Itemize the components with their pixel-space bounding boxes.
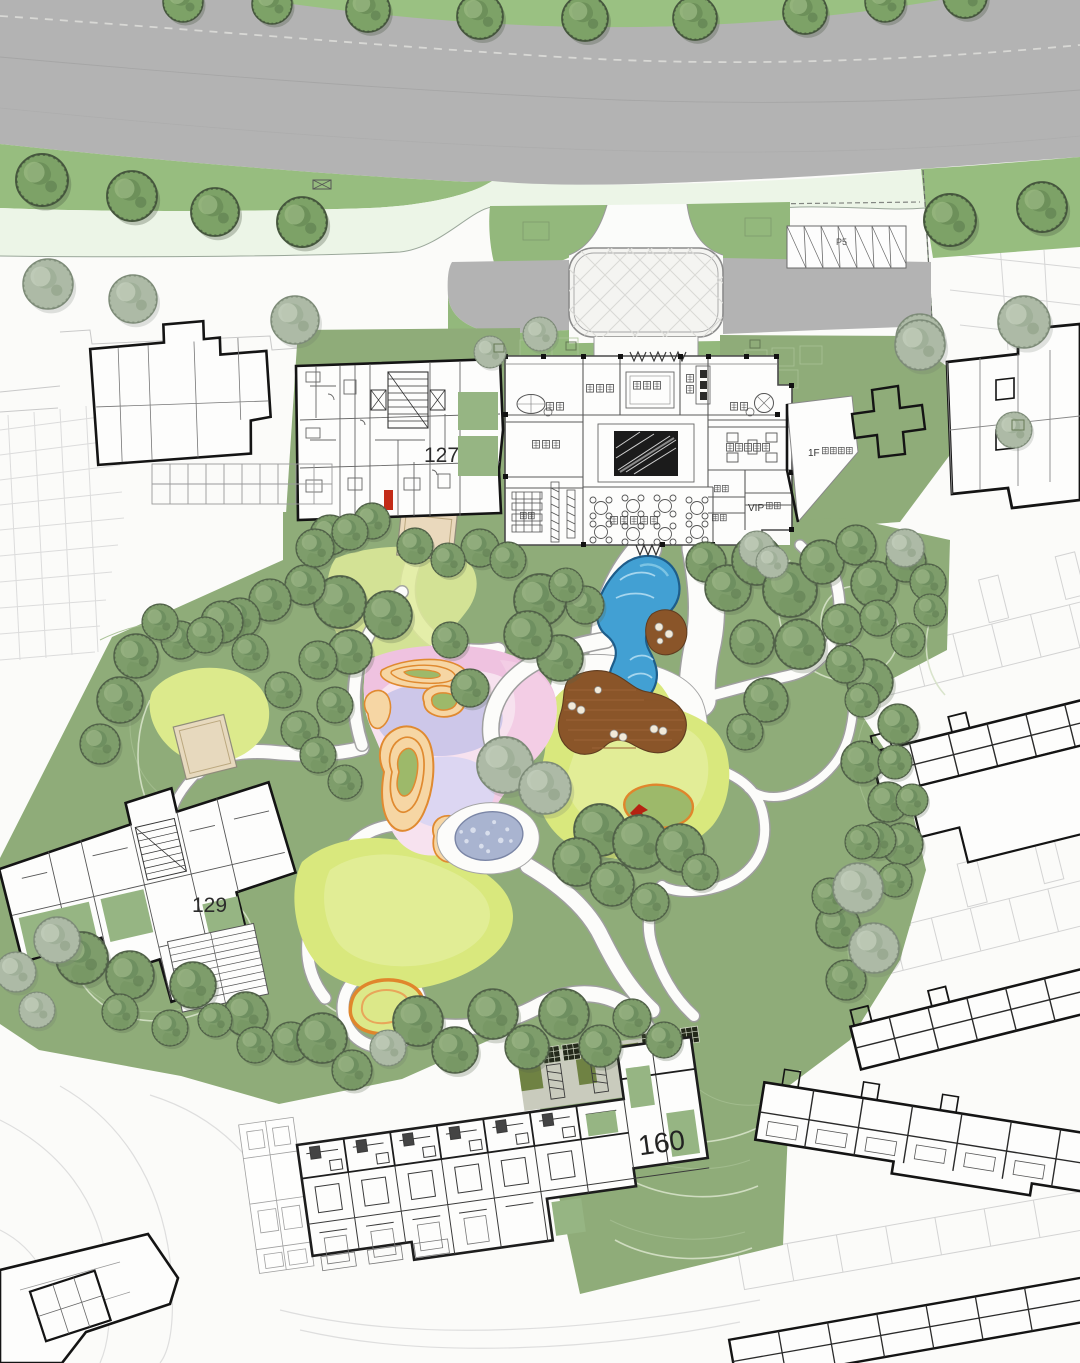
svg-text:VIP: VIP xyxy=(748,503,764,514)
svg-text:160: 160 xyxy=(636,1124,687,1161)
svg-text:1F: 1F xyxy=(808,448,820,459)
svg-text:127: 127 xyxy=(424,444,459,467)
svg-text:P5: P5 xyxy=(836,237,847,247)
svg-text:129: 129 xyxy=(192,894,227,917)
